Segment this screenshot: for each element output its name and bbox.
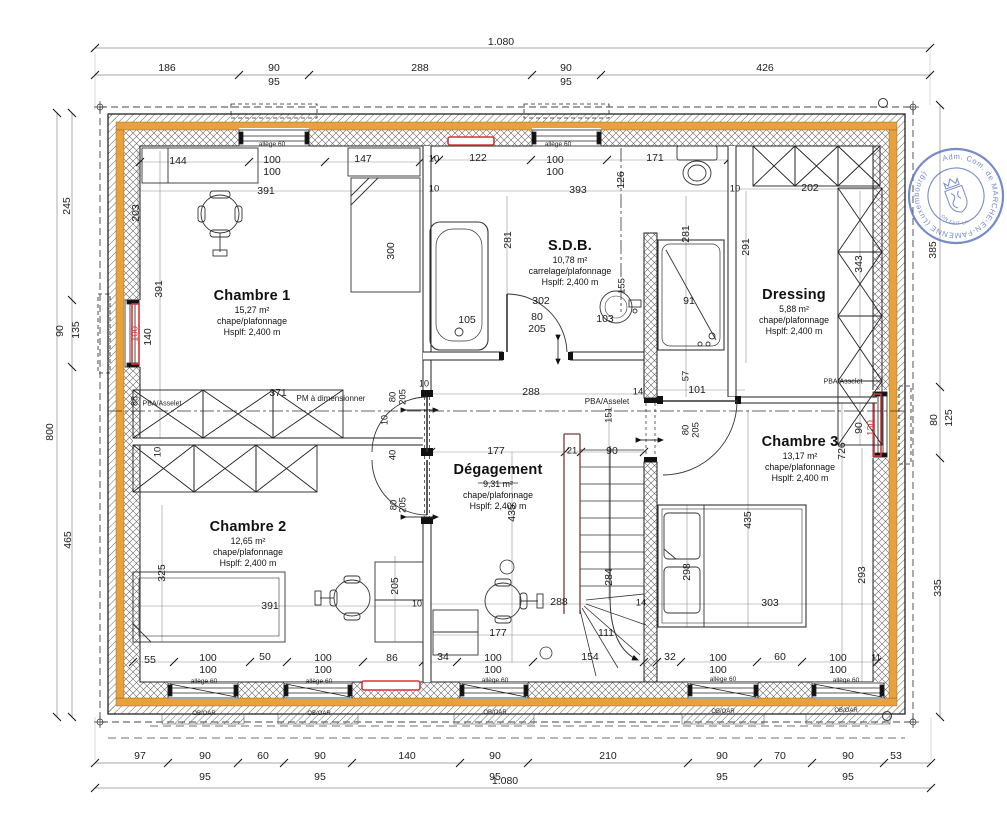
- dimension-label: 103: [596, 314, 614, 325]
- dimension-label: 205: [390, 577, 401, 595]
- dimension-label: 90: [842, 751, 854, 762]
- dimension-label: 288: [411, 63, 429, 74]
- room-label: Chambre 115,27 m²chape/plafonnageHsplf: …: [214, 289, 291, 338]
- dimension-label: 100: [199, 665, 217, 676]
- dimension-label: 10: [412, 600, 422, 609]
- dimension-label: 205: [398, 389, 408, 405]
- dimension-label: OB/OAR: [834, 708, 857, 714]
- room-info: Hsplf: 2,400 m: [759, 326, 829, 337]
- dimension-label: 90: [716, 751, 728, 762]
- room-name: S.D.B.: [529, 239, 612, 255]
- dimension-label: 100: [314, 653, 332, 664]
- toilet: [677, 146, 717, 185]
- dimension-label: 1.080: [492, 776, 518, 787]
- dimension-label: 86: [386, 653, 398, 664]
- dimension-label: 95: [560, 77, 572, 88]
- dimension-label: 10: [429, 184, 440, 194]
- dimension-label: PBA/Asselet: [143, 401, 182, 408]
- dimension-label: 60: [774, 652, 786, 663]
- room-info: chape/plafonnage: [762, 462, 839, 473]
- dresser-degagement: [433, 610, 478, 655]
- room-label: Chambre 212,65 m²chape/plafonnageHsplf: …: [210, 520, 287, 569]
- room-label: Chambre 313,17 m²chape/plafonnageHsplf: …: [762, 435, 839, 484]
- dimension-label: 205: [528, 324, 546, 335]
- dimension-label: 325: [157, 564, 168, 582]
- dimension-label: 70: [774, 751, 786, 762]
- dimension-label: PBA/Asselet: [824, 379, 863, 386]
- dimension-label: 90: [55, 325, 66, 337]
- room-name: Chambre 2: [210, 520, 287, 536]
- dimension-label: 1.080: [488, 37, 514, 48]
- dimension-label: 203: [131, 204, 142, 222]
- dimension-label: 97: [134, 751, 146, 762]
- dimension-label: 125: [944, 409, 955, 427]
- dimension-label: 100: [829, 653, 847, 664]
- dimension-label: 50: [259, 652, 271, 663]
- dimension-label: allège 60: [259, 142, 285, 149]
- dimension-label: 302: [532, 296, 550, 307]
- dimension-label: 57: [681, 371, 691, 382]
- dimension-label: allège 60: [833, 678, 859, 685]
- dimension-label: 385: [928, 241, 939, 259]
- dimension-label: 10: [381, 415, 390, 425]
- dimension-label: 391: [257, 186, 275, 197]
- dimension-label: 291: [741, 238, 752, 256]
- roof-outline-dashed: [100, 107, 913, 738]
- bed-chambre1: [348, 148, 420, 292]
- dimension-label: 100: [829, 665, 847, 676]
- dimension-label: 95: [716, 772, 728, 783]
- dimension-label: 21: [567, 446, 578, 456]
- dimension-label: allège 60: [191, 679, 217, 686]
- dimension-label: 100: [130, 326, 140, 342]
- dimension-label: 177: [487, 446, 505, 457]
- room-info: Hsplf: 2,400 m: [453, 501, 542, 512]
- room-info: 5,88 m²: [759, 304, 829, 315]
- dimension-label: 10: [419, 380, 429, 389]
- dimension-label: 10: [153, 447, 163, 458]
- dimension-label: 90: [560, 63, 572, 74]
- dimension-label: 435: [507, 504, 518, 522]
- dimension-label: PBA/Asselet: [585, 398, 629, 406]
- room-info: chape/plafonnage: [210, 547, 287, 558]
- dimension-label: 91: [683, 296, 695, 307]
- dimension-label: 371: [269, 388, 287, 399]
- municipal-stamp: Adm. Com. de MARCHE-EN-FAMENNE (Luxembou…: [896, 136, 1007, 256]
- dimension-label: 10: [730, 184, 741, 194]
- dimension-label: 202: [801, 183, 819, 194]
- dimension-label: OB/OAR: [711, 709, 734, 715]
- dimension-label: OB/OAR: [192, 711, 215, 717]
- room-name: Chambre 3: [762, 435, 839, 451]
- dimension-label: 298: [682, 563, 693, 581]
- dimension-label: 100: [314, 665, 332, 676]
- dimension-label: 288: [522, 387, 540, 398]
- dimension-label: PM à dimensionner: [297, 395, 366, 403]
- room-info: 13,17 m²: [762, 451, 839, 462]
- dimension-label: 800: [45, 423, 56, 441]
- red-highlight: [362, 681, 420, 690]
- dimension-label: 14: [636, 598, 647, 608]
- dimension-label: 90: [199, 751, 211, 762]
- dimension-label: 90: [314, 751, 326, 762]
- stamp-emblem: [941, 176, 970, 215]
- dimension-label: 34: [437, 652, 449, 663]
- dimension-label: 210: [599, 751, 617, 762]
- dimension-label: 88: [131, 396, 140, 406]
- room-label: Dégagement9,31 m²chape/plafonnageHsplf: …: [453, 463, 542, 512]
- dimension-label: 154: [581, 652, 599, 663]
- chair-degagement: [485, 579, 543, 623]
- room-name: Chambre 1: [214, 289, 291, 305]
- dimension-label: 245: [62, 197, 73, 215]
- dimension-label: 343: [854, 255, 865, 273]
- dimension-label: 55: [144, 655, 156, 666]
- dimension-label: 147: [354, 154, 372, 165]
- dimension-label: 205: [398, 497, 408, 513]
- dimension-label: 155: [617, 278, 627, 294]
- room-label: Dressing5,88 m²chape/plafonnageHsplf: 2,…: [759, 288, 829, 337]
- dimension-label: 111: [598, 628, 614, 639]
- dimension-label: 186: [158, 63, 176, 74]
- dimension-label: 130: [866, 420, 876, 436]
- wardrobe-dressing-top: [753, 146, 880, 186]
- dimension-label: 100: [484, 665, 502, 676]
- room-info: 12,65 m²: [210, 536, 287, 547]
- dimension-label: 95: [314, 772, 326, 783]
- room-info: 10,78 m²: [529, 255, 612, 266]
- dimension-label: 426: [756, 63, 774, 74]
- dimension-label: 288: [550, 597, 568, 608]
- room-name: Dressing: [759, 288, 829, 304]
- room-label: S.D.B.10,78 m²carrelage/plafonnageHsplf:…: [529, 239, 612, 288]
- dimension-label: 100: [199, 653, 217, 664]
- chair-chambre2: [315, 576, 370, 620]
- dimension-label: 90: [489, 751, 501, 762]
- dimension-label: 100: [484, 653, 502, 664]
- red-highlight: [448, 137, 494, 145]
- floor-plan-drawing: Adm. Com. de MARCHE-EN-FAMENNE (Luxembou…: [0, 0, 1007, 829]
- dimension-label: 391: [154, 280, 165, 298]
- dimension-label: 144: [169, 156, 187, 167]
- dimension-label: 205: [691, 422, 701, 438]
- dimension-label: 151: [604, 407, 614, 423]
- stair-direction-arrow: [610, 446, 638, 660]
- dimension-label: 140: [398, 751, 416, 762]
- room-info: Hsplf: 2,400 m: [214, 327, 291, 338]
- room-info: chape/plafonnage: [759, 315, 829, 326]
- dimension-label: 100: [546, 155, 564, 166]
- room-info: chape/plafonnage: [214, 316, 291, 327]
- dimension-label: 300: [386, 242, 397, 260]
- dimension-label: 90: [854, 422, 865, 434]
- dimension-label: 14: [633, 387, 644, 397]
- room-info: Hsplf: 2,400 m: [210, 558, 287, 569]
- dimension-label: 100: [709, 665, 727, 676]
- dimension-label: 284: [604, 568, 615, 586]
- dimension-label: 95: [199, 772, 211, 783]
- dimension-label: 80: [929, 414, 940, 426]
- room-info: 9,31 m²: [453, 479, 542, 490]
- dimension-label: allège 60: [482, 678, 508, 685]
- chair-chambre1: [198, 191, 242, 256]
- dimension-label: 40: [388, 450, 398, 461]
- dimension-label: 32: [664, 652, 676, 663]
- dimension-label: 177: [489, 628, 507, 639]
- dimension-label: 100: [263, 167, 281, 178]
- dimension-label: 122: [469, 153, 487, 164]
- dimension-label: 100: [263, 155, 281, 166]
- room-info: Hsplf: 2,400 m: [529, 277, 612, 288]
- svg-text:Adm. Com. de MARCHE-EN-FAMENNE: Adm. Com. de MARCHE-EN-FAMENNE (Luxembou…: [900, 139, 1007, 252]
- dimension-label: 95: [842, 772, 854, 783]
- dimension-label: 140: [143, 328, 154, 346]
- dimension-label: 135: [71, 321, 82, 339]
- dimension-label: 303: [761, 598, 779, 609]
- room-info: Hsplf: 2,400 m: [762, 473, 839, 484]
- dimension-label: 10: [429, 154, 440, 164]
- dimension-label: 281: [503, 231, 514, 249]
- dimension-label: 293: [857, 566, 868, 584]
- dimension-label: allège 60: [545, 142, 571, 149]
- dimension-label: 101: [688, 385, 706, 396]
- room-info: carrelage/plafonnage: [529, 266, 612, 277]
- dimension-label: 726: [837, 442, 848, 460]
- dimension-label: 281: [681, 225, 692, 243]
- dimension-label: 100: [546, 167, 564, 178]
- dimension-label: 95: [268, 77, 280, 88]
- room-info: chape/plafonnage: [453, 490, 542, 501]
- dimension-label: 100: [709, 653, 727, 664]
- room-info: 15,27 m²: [214, 305, 291, 316]
- stamp-outer-text: Adm. Com. de MARCHE-EN-FAMENNE (Luxembou…: [900, 139, 1007, 252]
- room-name: Dégagement: [453, 463, 542, 479]
- dimension-label: 465: [63, 531, 74, 549]
- dimension-label: 391: [261, 601, 279, 612]
- dimension-label: allège 60: [710, 677, 736, 684]
- dimension-label: OB/OAR: [483, 710, 506, 716]
- dimension-label: 126: [616, 171, 627, 189]
- dimension-label: 90: [606, 446, 618, 457]
- dimension-label: 393: [569, 185, 587, 196]
- dimension-label: 105: [458, 315, 476, 326]
- floor-plan-page: Adm. Com. de MARCHE-EN-FAMENNE (Luxembou…: [0, 0, 1007, 829]
- desk-chambre1: [142, 148, 258, 183]
- dimension-label: 171: [646, 153, 664, 164]
- dimension-label: 335: [933, 579, 944, 597]
- exterior-walls: [108, 114, 905, 714]
- dimension-label: OB/OAR: [307, 711, 330, 717]
- dimension-label: 90: [268, 63, 280, 74]
- bathtub: [430, 222, 488, 350]
- stair-railing: [564, 434, 580, 614]
- dimension-label: 11: [871, 653, 881, 663]
- dimension-label: allège 60: [306, 679, 332, 686]
- dimension-label: 435: [743, 511, 754, 529]
- dimension-label: 80: [531, 312, 543, 323]
- dimension-label: 60: [257, 751, 269, 762]
- dimension-label: 53: [890, 751, 902, 762]
